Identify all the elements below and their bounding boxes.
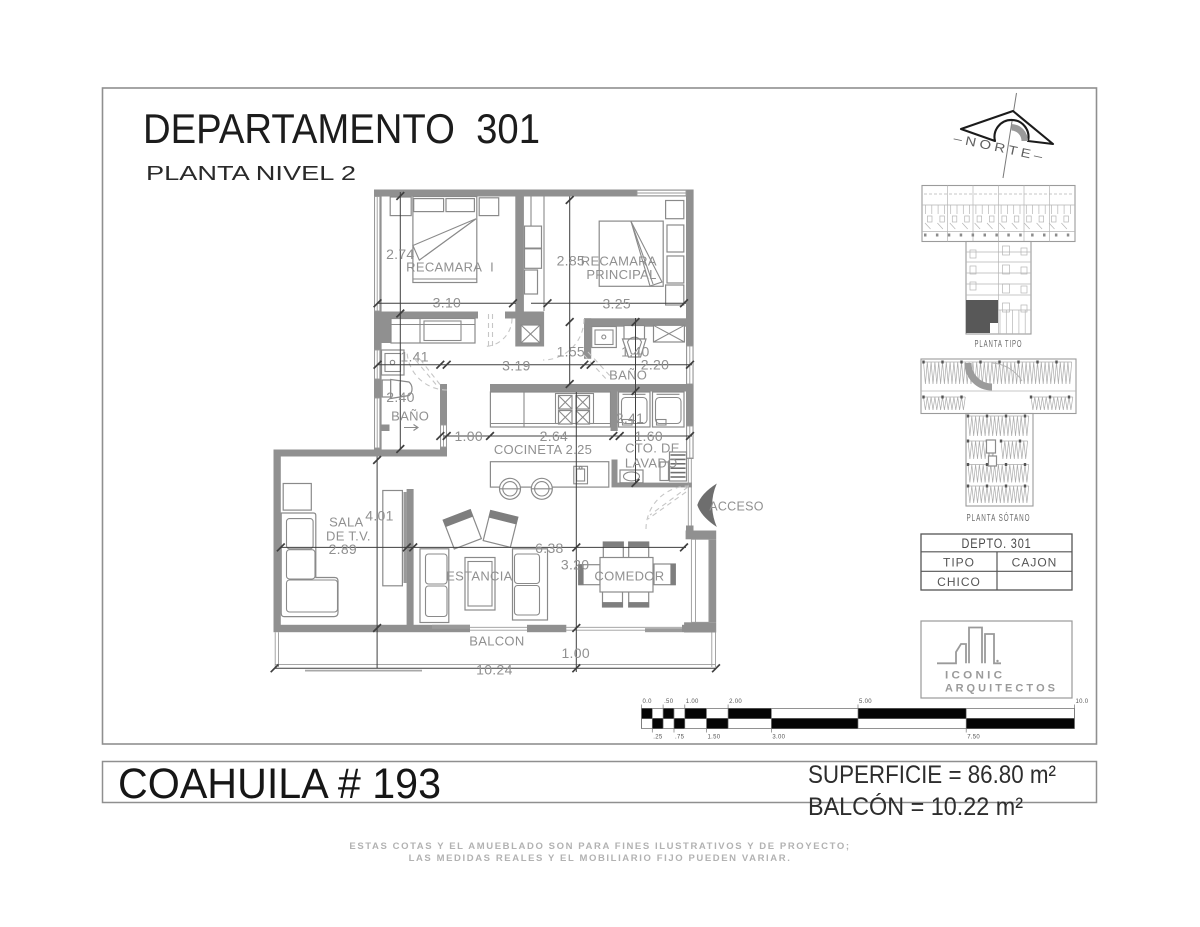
svg-text:BALCÓN = 10.22 m²: BALCÓN = 10.22 m² — [808, 792, 1023, 821]
svg-text:2.41: 2.41 — [616, 410, 644, 426]
svg-text:1.50: 1.50 — [708, 735, 721, 741]
svg-text:1.00: 1.00 — [454, 428, 482, 444]
svg-text:CAJON: CAJON — [1012, 556, 1058, 570]
svg-text:SALA: SALA — [329, 515, 363, 530]
svg-text:4.01: 4.01 — [365, 508, 393, 524]
svg-text:2.00: 2.00 — [729, 699, 742, 705]
svg-text:1.55: 1.55 — [557, 344, 585, 360]
svg-text:BALCON: BALCON — [469, 634, 524, 649]
svg-text:TIPO: TIPO — [943, 556, 975, 570]
svg-text:DEPTO. 301: DEPTO. 301 — [962, 536, 1032, 551]
svg-text:LAS MEDIDAS REALES Y EL MOBILI: LAS MEDIDAS REALES Y EL MOBILIARIO FIJO … — [409, 853, 792, 864]
svg-text:PLANTA NIVEL 2: PLANTA NIVEL 2 — [146, 163, 356, 185]
svg-text:CHICO: CHICO — [937, 575, 981, 589]
svg-text:COMEDOR: COMEDOR — [594, 569, 664, 584]
svg-text:RECAMARA I: RECAMARA I — [406, 260, 494, 275]
svg-text:DEPARTAMENTO 301: DEPARTAMENTO 301 — [143, 105, 540, 152]
svg-text:.50: .50 — [664, 699, 674, 705]
svg-text:3.19: 3.19 — [502, 358, 530, 374]
svg-text:DE T.V.: DE T.V. — [326, 529, 371, 544]
svg-text:1.41: 1.41 — [400, 349, 428, 365]
svg-text:PRINCIPAL: PRINCIPAL — [586, 267, 656, 282]
svg-text:CTO. DE: CTO. DE — [625, 441, 680, 456]
svg-text:6.38: 6.38 — [535, 540, 563, 556]
svg-text:ESTAS COTAS Y EL AMUEBLADO SON: ESTAS COTAS Y EL AMUEBLADO SON PARA FINE… — [349, 841, 850, 852]
svg-text:BAÑO: BAÑO — [609, 368, 647, 383]
svg-text:COAHUILA # 193: COAHUILA # 193 — [118, 760, 441, 808]
svg-text:2.40: 2.40 — [386, 389, 414, 405]
svg-text:A R Q U I T E C T O S: A R Q U I T E C T O S — [945, 683, 1055, 695]
svg-text:PLANTA SÓTANO: PLANTA SÓTANO — [967, 511, 1031, 524]
svg-text:SUPERFICIE = 86.80 m²: SUPERFICIE = 86.80 m² — [808, 761, 1056, 789]
svg-text:.75: .75 — [675, 735, 685, 741]
svg-text:ESTANCIA: ESTANCIA — [446, 569, 512, 584]
svg-text:3.20: 3.20 — [561, 557, 589, 573]
svg-text:1.00: 1.00 — [686, 699, 699, 705]
svg-text:10.24: 10.24 — [476, 662, 513, 678]
svg-text:3.00: 3.00 — [772, 735, 785, 741]
svg-text:COCINETA 2.25: COCINETA 2.25 — [494, 442, 592, 457]
svg-text:10.0: 10.0 — [1076, 699, 1089, 705]
svg-text:PLANTA TIPO: PLANTA TIPO — [975, 339, 1023, 350]
svg-text:LAVADO: LAVADO — [625, 456, 678, 471]
svg-text:5.00: 5.00 — [859, 699, 872, 705]
svg-text:3.25: 3.25 — [602, 296, 630, 312]
svg-text:7.50: 7.50 — [967, 735, 980, 741]
svg-text:1.00: 1.00 — [561, 645, 589, 661]
svg-text:I C O N I C: I C O N I C — [945, 670, 1002, 682]
svg-text:BAÑO: BAÑO — [391, 409, 429, 424]
svg-text:ACCESO: ACCESO — [709, 500, 764, 514]
svg-text:3.10: 3.10 — [433, 295, 461, 311]
svg-text:.25: .25 — [653, 735, 663, 741]
svg-text:0.0: 0.0 — [643, 699, 653, 705]
